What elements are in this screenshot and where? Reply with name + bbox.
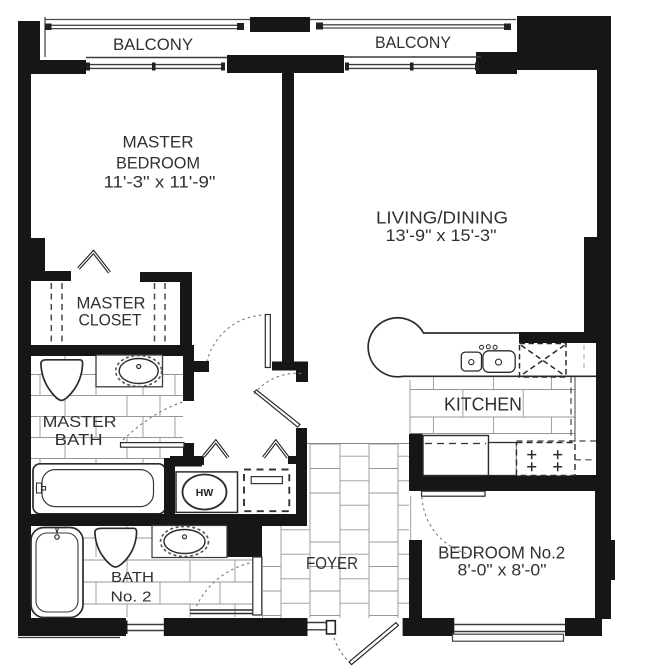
svg-text:FOYER: FOYER (306, 553, 358, 573)
svg-text:LIVING/DINING: LIVING/DINING (376, 208, 508, 228)
svg-text:BATH: BATH (111, 569, 154, 586)
svg-text:BEDROOM: BEDROOM (116, 154, 200, 173)
svg-text:BALCONY: BALCONY (375, 33, 451, 52)
svg-text:CLOSET: CLOSET (79, 311, 142, 330)
svg-text:13'-9" x 15'-3": 13'-9" x 15'-3" (386, 226, 497, 245)
svg-text:11'-3" x 11'-9": 11'-3" x 11'-9" (104, 172, 216, 191)
svg-text:HW: HW (196, 488, 214, 499)
svg-text:KITCHEN: KITCHEN (444, 395, 522, 415)
svg-text:BEDROOM No.2: BEDROOM No.2 (438, 542, 565, 562)
svg-text:BALCONY: BALCONY (113, 35, 193, 54)
svg-text:No. 2: No. 2 (111, 589, 152, 606)
svg-text:BATH: BATH (55, 432, 103, 449)
svg-text:MASTER: MASTER (43, 414, 117, 431)
svg-text:MASTER: MASTER (123, 133, 194, 152)
svg-text:8'-0" x 8'-0": 8'-0" x 8'-0" (458, 561, 547, 580)
